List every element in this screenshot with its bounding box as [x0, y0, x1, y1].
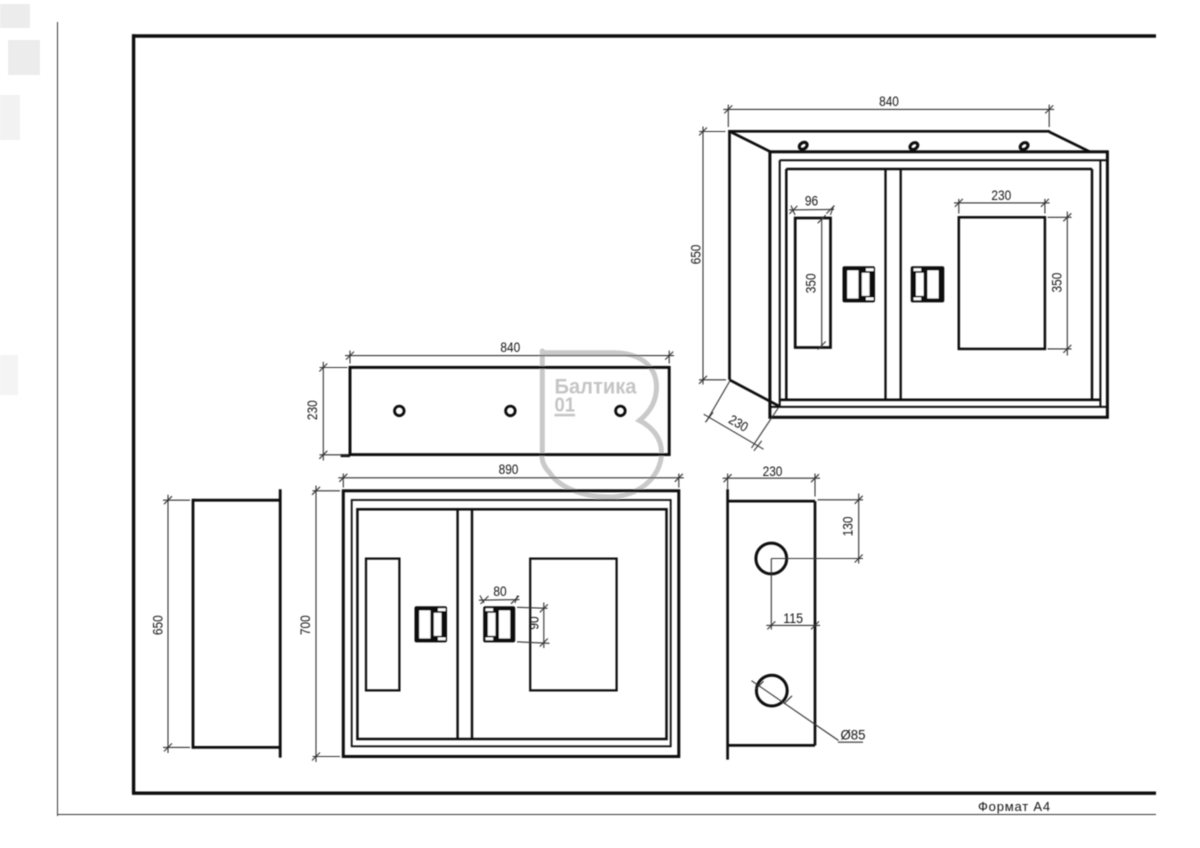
svg-text:650: 650 [689, 245, 704, 265]
svg-text:80: 80 [493, 584, 506, 599]
svg-text:890: 890 [499, 462, 519, 477]
svg-text:115: 115 [783, 611, 803, 626]
svg-text:90: 90 [527, 616, 542, 629]
svg-text:840: 840 [500, 340, 520, 355]
svg-text:840: 840 [879, 94, 899, 109]
svg-text:96: 96 [805, 193, 818, 208]
svg-text:350: 350 [803, 273, 818, 293]
svg-text:Ø85: Ø85 [841, 728, 866, 743]
svg-text:700: 700 [298, 615, 313, 635]
svg-text:230: 230 [991, 188, 1011, 203]
svg-text:01: 01 [555, 395, 576, 417]
svg-text:350: 350 [1049, 273, 1064, 293]
svg-text:230: 230 [305, 400, 320, 420]
svg-text:Формат А4: Формат А4 [978, 799, 1051, 814]
svg-text:650: 650 [150, 615, 165, 635]
svg-text:230: 230 [763, 464, 783, 479]
svg-text:130: 130 [841, 517, 856, 537]
